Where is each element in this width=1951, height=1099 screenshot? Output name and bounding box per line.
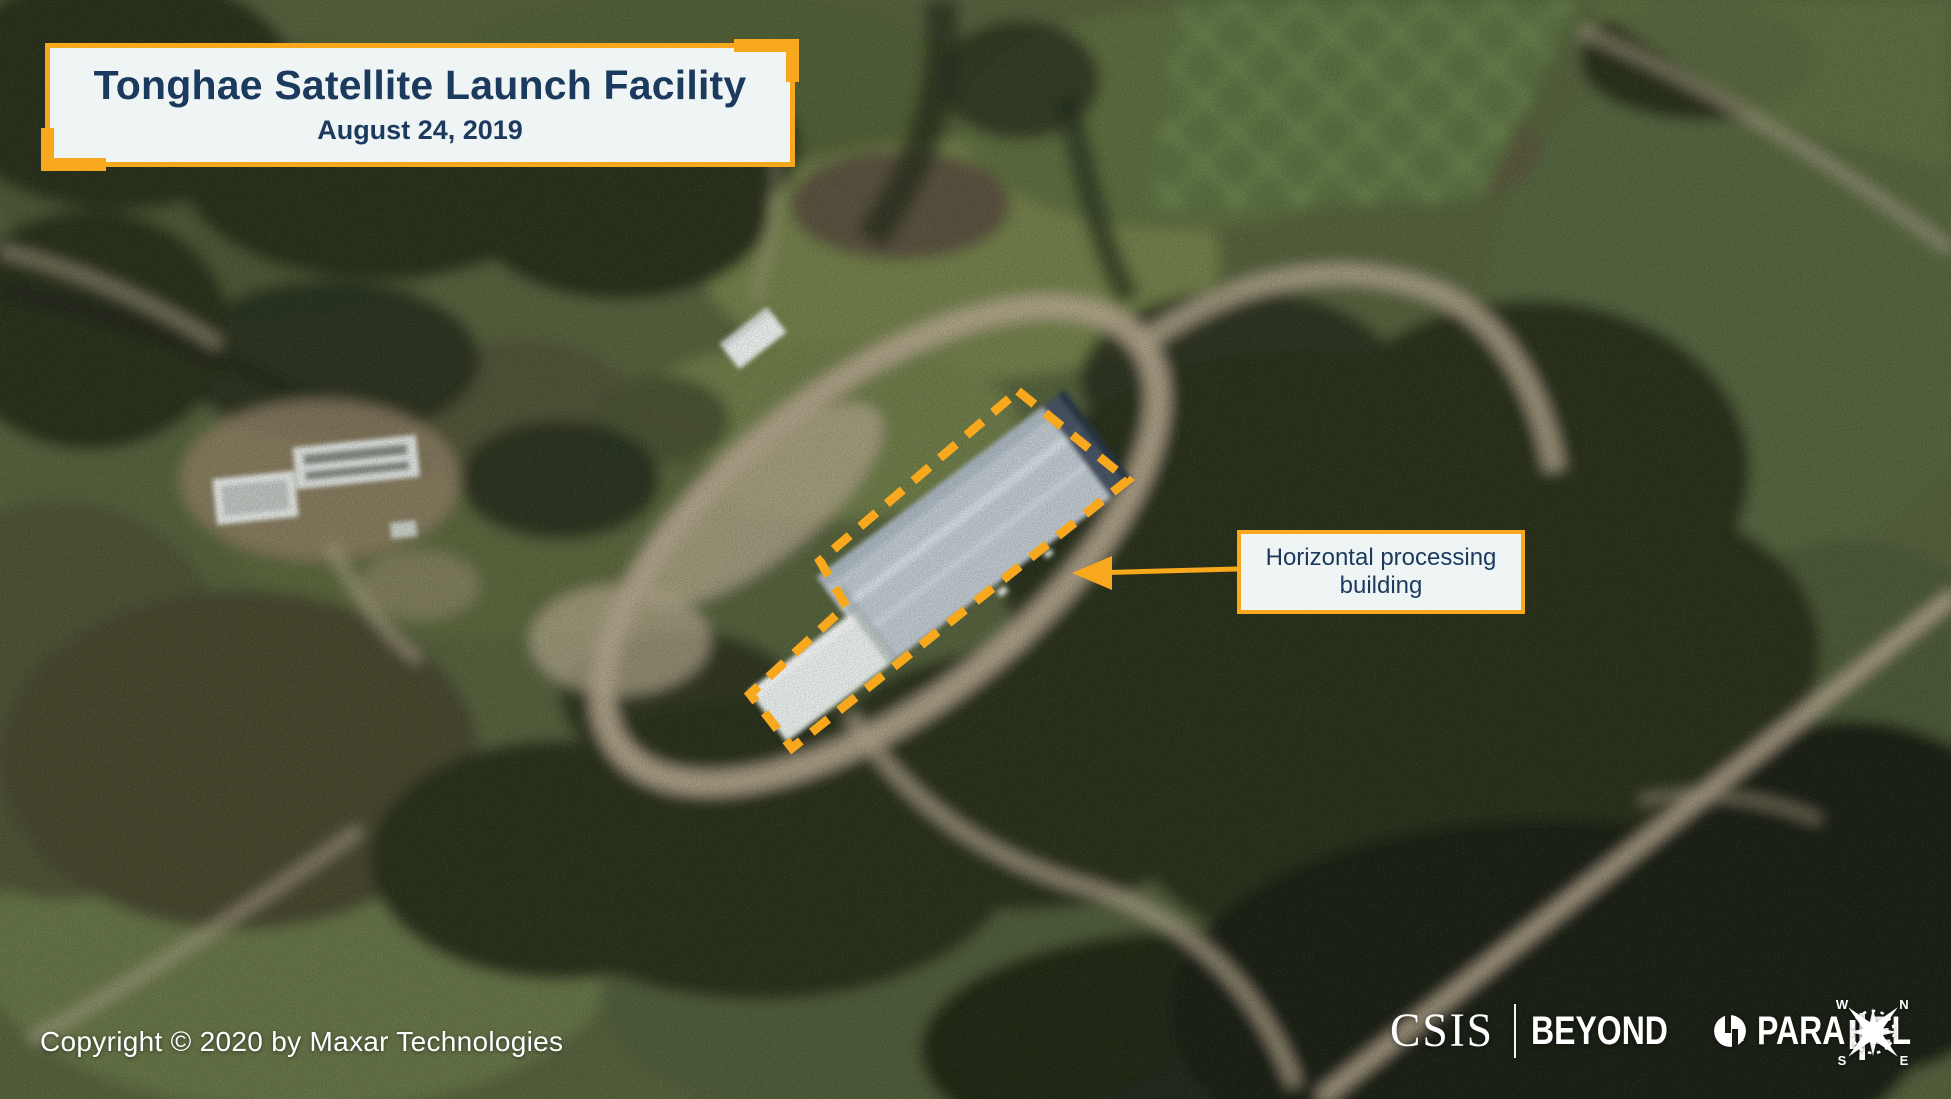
annotated-satellite-image: Tonghae Satellite Launch Facility August… (0, 0, 1951, 1099)
map-title: Tonghae Satellite Launch Facility (94, 64, 747, 107)
copyright-text: Copyright © 2020 by Maxar Technologies (40, 1026, 563, 1058)
compass-letter-north: N (1899, 997, 1908, 1012)
annotation-label-text: Horizontal processing building (1249, 544, 1513, 601)
compass-letter-south: S (1838, 1053, 1847, 1068)
compass-letter-west: W (1836, 997, 1849, 1012)
corner-bracket-top-right (734, 39, 799, 82)
beyond-parallel-icon (1712, 1013, 1748, 1049)
corner-bracket-bottom-left (41, 128, 106, 171)
beyond-text: BEYOND (1531, 1011, 1668, 1051)
annotation-label-box: Horizontal processing building (1237, 530, 1525, 614)
csis-logo: CSIS (1390, 1007, 1494, 1055)
map-date: August 24, 2019 (317, 115, 523, 146)
title-box: Tonghae Satellite Launch Facility August… (45, 43, 795, 167)
logo-divider (1514, 1004, 1516, 1058)
compass-letter-east: E (1900, 1053, 1909, 1068)
compass-rose-icon: W N S E (1832, 991, 1914, 1073)
